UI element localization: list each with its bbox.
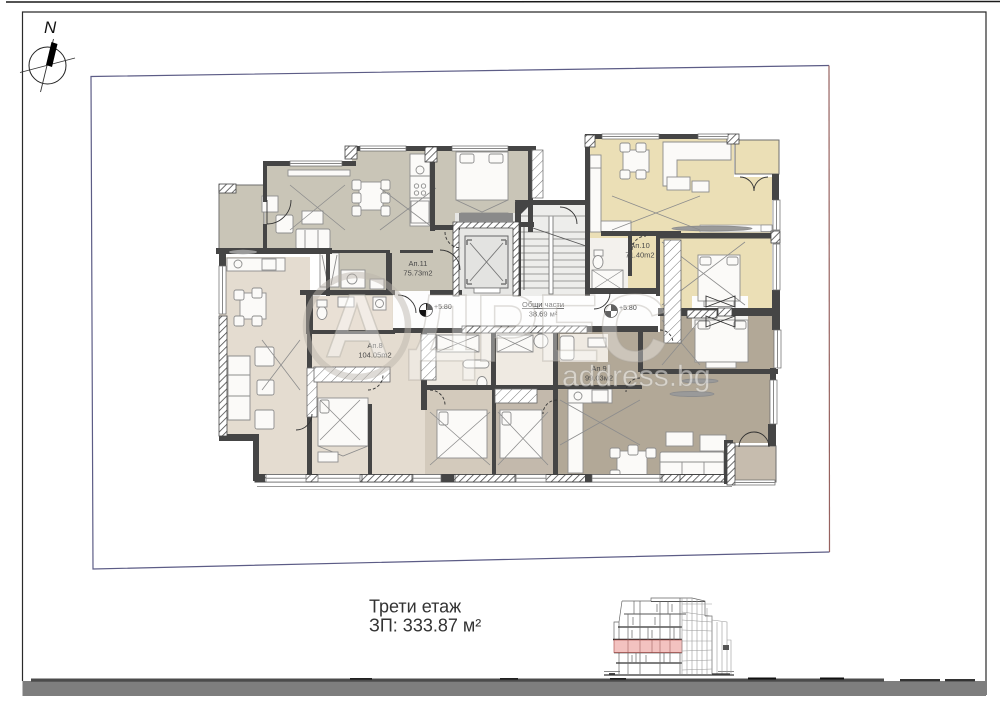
svg-text:Ап.10: Ап.10 — [630, 241, 650, 250]
svg-text:Ап.11: Ап.11 — [409, 259, 428, 268]
svg-text:Трети етаж: Трети етаж — [369, 597, 461, 617]
svg-text:71.40m2: 71.40m2 — [625, 251, 654, 260]
svg-text:address.bg: address.bg — [562, 360, 710, 393]
svg-text:А: А — [325, 277, 390, 377]
svg-text:N: N — [44, 18, 57, 37]
svg-text:ЗП: 333.87 м²: ЗП: 333.87 м² — [369, 616, 481, 636]
